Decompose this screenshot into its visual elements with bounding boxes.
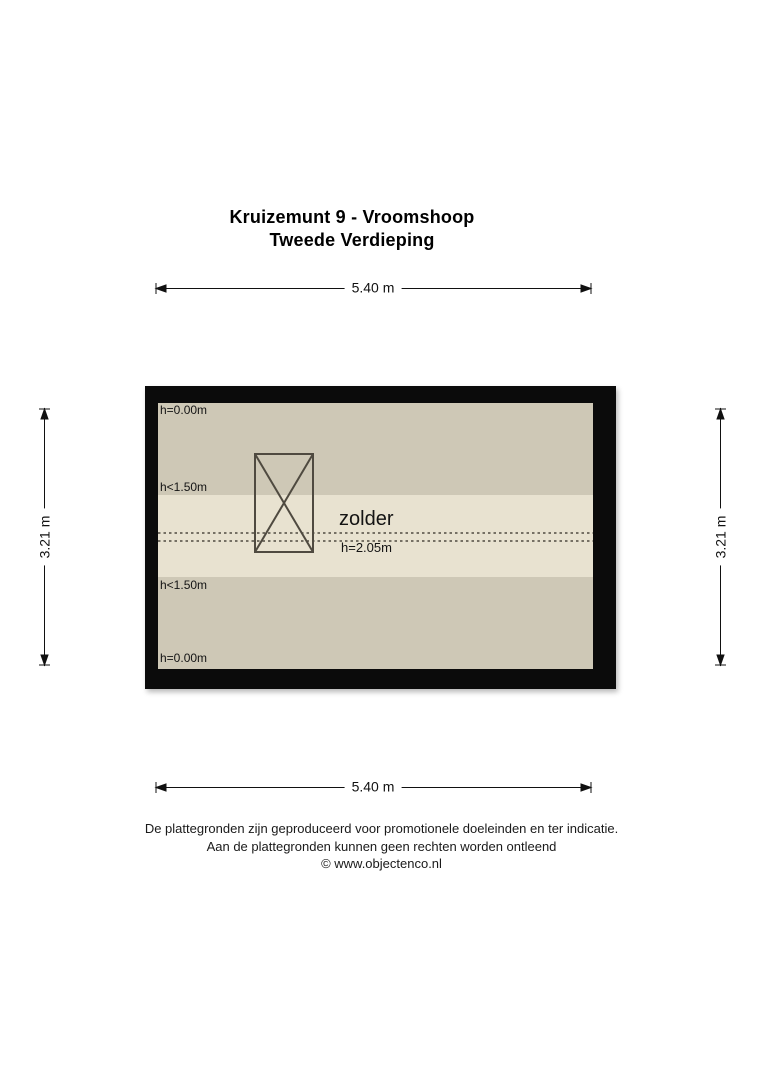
height-label-bottom: h=0.00m — [160, 652, 207, 665]
roof-slope-band-bottom — [158, 577, 593, 669]
footer-line-2: Aan de plattegronden kunnen geen rechten… — [0, 838, 763, 856]
dimension-label-bottom: 5.40 m — [345, 780, 402, 795]
height-label-center: h=2.05m — [341, 541, 392, 554]
title-address: Kruizemunt 9 - Vroomshoop — [152, 206, 552, 229]
height-label-lower: h<1.50m — [160, 579, 207, 592]
height-label-top: h=0.00m — [160, 404, 207, 417]
dimension-label-right: 3.21 m — [714, 509, 729, 566]
footer-disclaimer: De plattegronden zijn geproduceerd voor … — [0, 820, 763, 873]
floorplan-page: Kruizemunt 9 - Vroomshoop Tweede Verdiep… — [0, 0, 763, 1080]
footer-line-1: De plattegronden zijn geproduceerd voor … — [0, 820, 763, 838]
dimension-label-left: 3.21 m — [38, 509, 53, 566]
height-label-upper: h<1.50m — [160, 481, 207, 494]
dimension-label-top: 5.40 m — [345, 281, 402, 296]
plan-interior — [158, 403, 593, 669]
roof-slope-band-top — [158, 403, 593, 495]
room-label-zolder: zolder — [339, 509, 393, 530]
title-floor: Tweede Verdieping — [152, 229, 552, 252]
page-title: Kruizemunt 9 - Vroomshoop Tweede Verdiep… — [152, 206, 552, 252]
footer-copyright: © www.objectenco.nl — [0, 855, 763, 873]
